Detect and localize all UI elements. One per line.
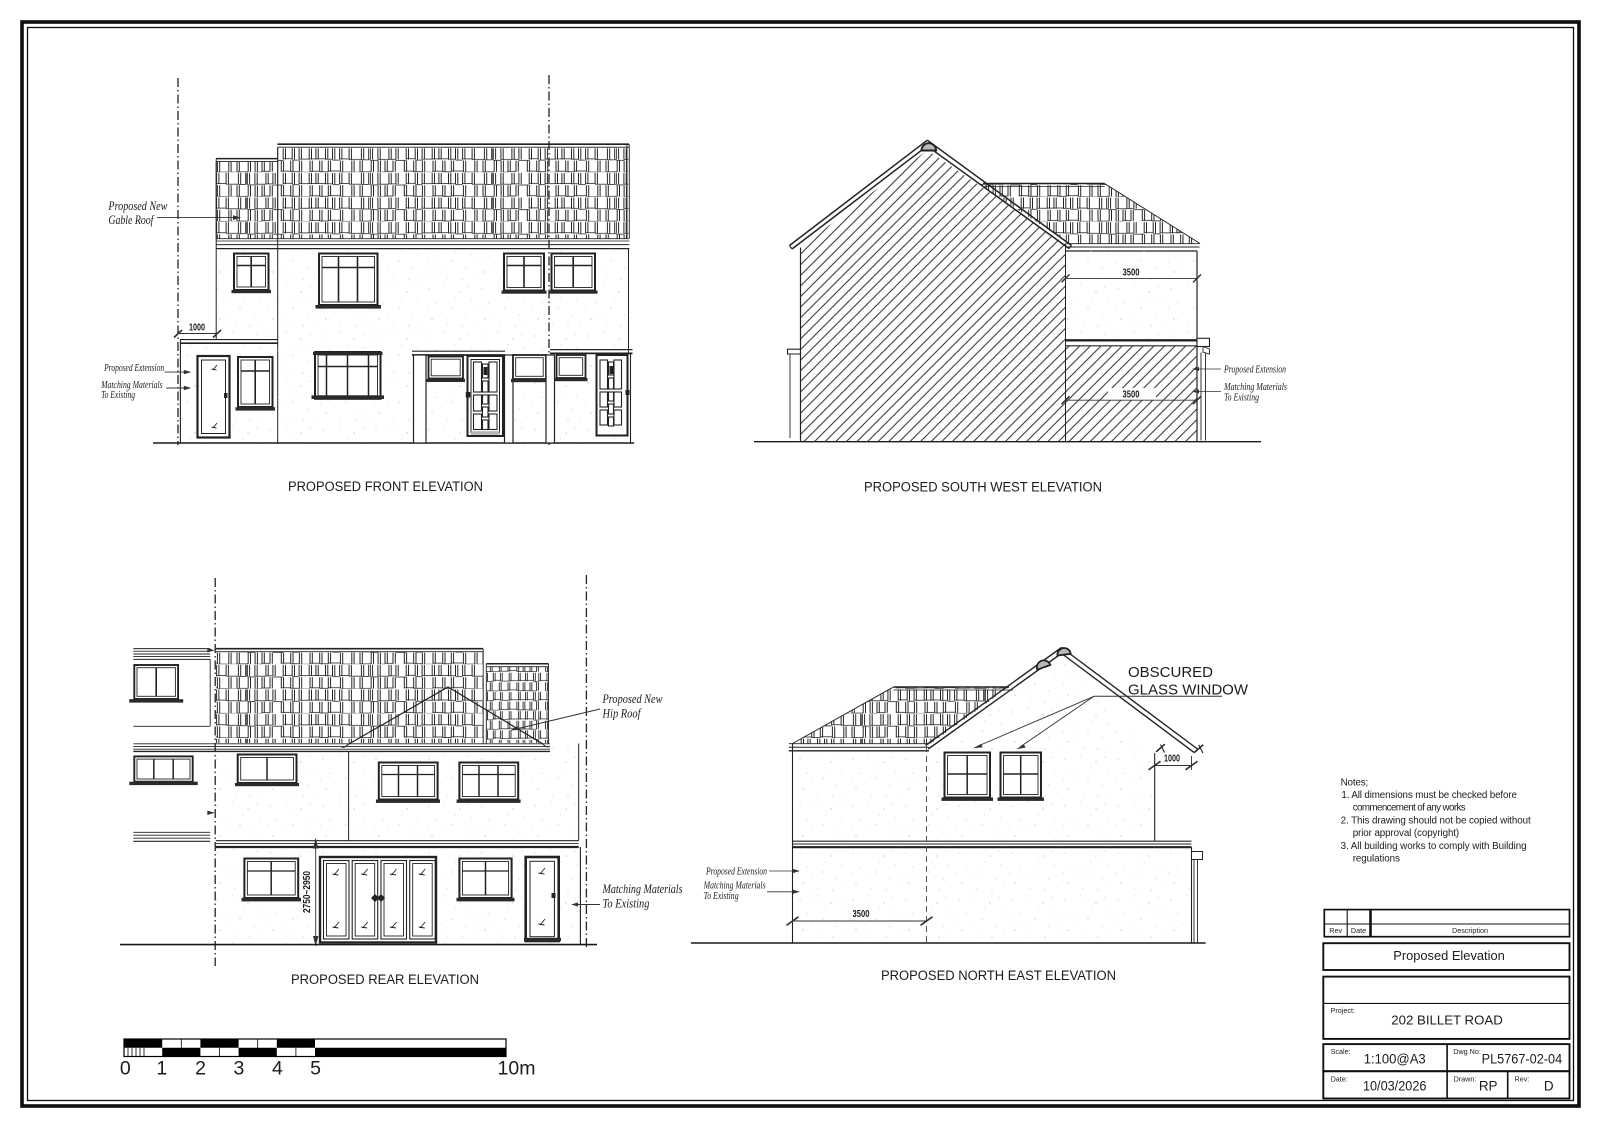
svg-text:PL5767-02-04: PL5767-02-04 [1482, 1052, 1563, 1067]
svg-text:1000: 1000 [1164, 754, 1180, 765]
svg-text:Proposed New: Proposed New [602, 691, 663, 706]
svg-text:Proposed New: Proposed New [108, 198, 168, 213]
svg-text:Matching Materials: Matching Materials [602, 881, 683, 896]
svg-text:10/03/2026: 10/03/2026 [1363, 1078, 1427, 1093]
svg-text:3: 3 [233, 1058, 244, 1080]
svg-text:3500: 3500 [1123, 389, 1140, 400]
svg-text:Drawn:: Drawn: [1454, 1075, 1477, 1084]
svg-text:1: 1 [156, 1058, 167, 1080]
svg-text:PROPOSED REAR ELEVATION: PROPOSED REAR ELEVATION [291, 972, 479, 988]
svg-text:Project:: Project: [1331, 1006, 1355, 1015]
svg-text:prior approval (copyright): prior approval (copyright) [1353, 828, 1460, 839]
svg-text:To Existing: To Existing [1224, 393, 1259, 404]
svg-text:Proposed Elevation: Proposed Elevation [1393, 948, 1505, 963]
svg-text:To Existing: To Existing [101, 390, 135, 401]
svg-text:Gable Roof: Gable Roof [108, 212, 155, 227]
svg-text:Proposed Extension: Proposed Extension [1223, 365, 1286, 376]
svg-text:Hip Roof: Hip Roof [602, 706, 643, 721]
svg-text:OBSCURED: OBSCURED [1128, 664, 1213, 681]
svg-text:Matching Materials: Matching Materials [1223, 382, 1287, 393]
svg-text:Dwg No:: Dwg No: [1453, 1047, 1481, 1056]
svg-text:Proposed Extension: Proposed Extension [103, 363, 164, 374]
svg-text:0: 0 [120, 1058, 131, 1080]
svg-text:RP: RP [1479, 1078, 1498, 1093]
svg-text:Rev:: Rev: [1515, 1075, 1530, 1084]
svg-text:Date: Date [1351, 926, 1366, 935]
svg-text:2. This drawing should not be: 2. This drawing should not be copied wit… [1341, 815, 1531, 826]
svg-text:1000: 1000 [189, 323, 205, 334]
svg-text:Notes;: Notes; [1341, 777, 1369, 788]
svg-text:3500: 3500 [1123, 268, 1140, 279]
svg-text:commencement of any works: commencement of any works [1353, 803, 1466, 814]
svg-text:2750~2950: 2750~2950 [302, 871, 313, 913]
svg-text:regulations: regulations [1353, 854, 1400, 865]
svg-text:2: 2 [195, 1058, 206, 1080]
svg-text:1:100@A3: 1:100@A3 [1364, 1052, 1426, 1067]
svg-text:Rev: Rev [1329, 926, 1342, 935]
svg-text:4: 4 [272, 1058, 283, 1080]
svg-text:Description: Description [1452, 926, 1488, 935]
svg-text:Proposed Extension: Proposed Extension [705, 867, 767, 878]
svg-text:3. All building works to compl: 3. All building works to comply with Bui… [1341, 841, 1527, 852]
svg-text:Date:: Date: [1331, 1075, 1348, 1084]
svg-text:D: D [1544, 1078, 1554, 1093]
svg-text:Scale:: Scale: [1331, 1047, 1351, 1056]
svg-text:To Existing: To Existing [603, 896, 650, 911]
svg-text:5: 5 [310, 1058, 321, 1080]
svg-text:10m: 10m [498, 1058, 536, 1080]
svg-text:3500: 3500 [853, 909, 870, 920]
svg-text:PROPOSED FRONT ELEVATION: PROPOSED FRONT ELEVATION [288, 479, 483, 495]
svg-text:202 BILLET ROAD: 202 BILLET ROAD [1391, 1013, 1503, 1028]
svg-text:1. All dimensions must be chec: 1. All dimensions must be checked before [1341, 790, 1517, 801]
svg-text:To Existing: To Existing [704, 891, 739, 902]
svg-text:PROPOSED SOUTH WEST ELEVATION: PROPOSED SOUTH WEST ELEVATION [864, 480, 1102, 496]
svg-text:PROPOSED NORTH EAST ELEVATION: PROPOSED NORTH EAST ELEVATION [881, 968, 1116, 984]
